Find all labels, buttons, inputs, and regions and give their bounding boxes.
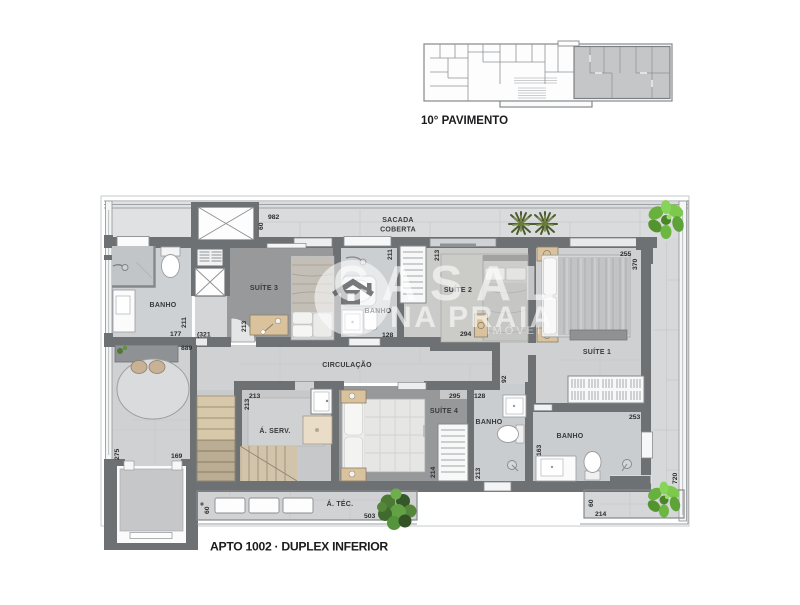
svg-text:275: 275 xyxy=(114,448,121,460)
svg-text:982: 982 xyxy=(268,214,280,221)
svg-text:CIRCULAÇÃO: CIRCULAÇÃO xyxy=(322,360,372,369)
svg-text:60: 60 xyxy=(258,222,265,230)
svg-text:BANHO: BANHO xyxy=(150,302,177,309)
svg-text:214: 214 xyxy=(595,511,607,518)
svg-text:503: 503 xyxy=(364,513,376,520)
svg-text:Á. SERV.: Á. SERV. xyxy=(259,426,290,435)
svg-text:60: 60 xyxy=(204,506,211,514)
svg-text:92: 92 xyxy=(501,375,508,383)
svg-text:SUÍTE 1: SUÍTE 1 xyxy=(583,347,611,356)
svg-text:213: 213 xyxy=(241,320,248,332)
svg-text:APTO 1002 · DUPLEX INFERIOR: APTO 1002 · DUPLEX INFERIOR xyxy=(210,540,388,554)
svg-text:163: 163 xyxy=(536,444,543,456)
svg-text:128: 128 xyxy=(474,393,486,400)
svg-text:253: 253 xyxy=(629,414,641,421)
svg-text:COBERTA: COBERTA xyxy=(380,227,416,234)
svg-text:IMÓVEIS: IMÓVEIS xyxy=(487,324,554,337)
svg-text:SUÍTE 3: SUÍTE 3 xyxy=(250,283,278,292)
svg-text:889: 889 xyxy=(181,345,193,352)
svg-text:211: 211 xyxy=(181,317,188,328)
svg-text:720: 720 xyxy=(672,472,679,484)
svg-text:BANHO: BANHO xyxy=(557,433,584,440)
svg-text:213: 213 xyxy=(244,398,251,410)
svg-text:60: 60 xyxy=(588,499,595,507)
svg-text:255: 255 xyxy=(620,251,632,258)
svg-text:SACADA: SACADA xyxy=(382,217,413,224)
svg-text:177: 177 xyxy=(170,331,182,338)
svg-text:295: 295 xyxy=(449,393,461,400)
svg-text:214: 214 xyxy=(430,466,437,478)
svg-text:213: 213 xyxy=(475,467,482,479)
svg-text:Á. TÉC.: Á. TÉC. xyxy=(327,499,354,508)
svg-text:169: 169 xyxy=(171,453,183,460)
svg-text:10° PAVIMENTO: 10° PAVIMENTO xyxy=(421,115,508,127)
svg-text:370: 370 xyxy=(632,258,639,270)
svg-text:BANHO: BANHO xyxy=(476,419,503,426)
svg-text:(321: (321 xyxy=(197,332,211,339)
svg-text:SUÍTE 4: SUÍTE 4 xyxy=(430,406,458,415)
